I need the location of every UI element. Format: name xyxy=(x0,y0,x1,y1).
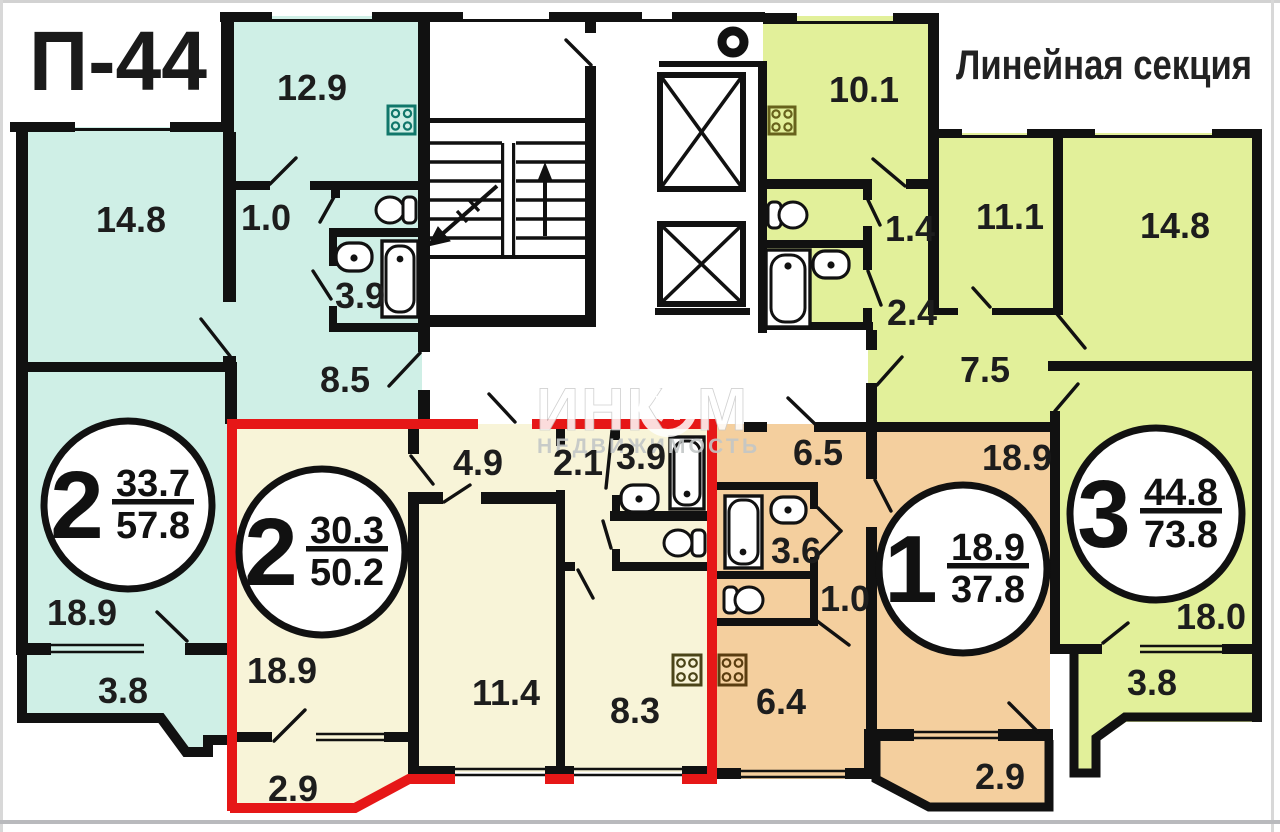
svg-text:1.4: 1.4 xyxy=(885,208,935,249)
svg-text:18.9: 18.9 xyxy=(47,592,117,633)
svg-text:30.3: 30.3 xyxy=(310,510,384,552)
svg-text:П-44: П-44 xyxy=(29,14,207,108)
svg-text:2: 2 xyxy=(244,499,297,606)
svg-text:2.9: 2.9 xyxy=(975,756,1025,797)
svg-text:3.8: 3.8 xyxy=(98,670,148,711)
svg-text:11.4: 11.4 xyxy=(472,672,540,713)
svg-text:1.0: 1.0 xyxy=(241,197,291,238)
svg-text:4.9: 4.9 xyxy=(453,442,503,483)
svg-text:3: 3 xyxy=(1077,461,1130,568)
svg-text:3.6: 3.6 xyxy=(771,530,821,571)
svg-text:57.8: 57.8 xyxy=(116,505,190,547)
svg-text:8.3: 8.3 xyxy=(610,690,660,731)
svg-text:8.5: 8.5 xyxy=(320,359,370,400)
svg-text:6.5: 6.5 xyxy=(793,432,843,473)
svg-text:18.9: 18.9 xyxy=(982,437,1052,478)
svg-text:3.9: 3.9 xyxy=(335,275,385,316)
svg-text:1: 1 xyxy=(884,516,937,623)
svg-text:М: М xyxy=(697,376,747,443)
svg-text:3.9: 3.9 xyxy=(616,436,666,477)
svg-text:18.9: 18.9 xyxy=(247,650,317,691)
svg-text:73.8: 73.8 xyxy=(1144,514,1218,556)
svg-text:37.8: 37.8 xyxy=(951,569,1025,611)
svg-text:3.8: 3.8 xyxy=(1127,662,1177,703)
svg-text:14.8: 14.8 xyxy=(1140,205,1210,246)
svg-text:18.9: 18.9 xyxy=(951,527,1025,569)
svg-text:12.9: 12.9 xyxy=(277,67,347,108)
svg-text:33.7: 33.7 xyxy=(116,463,190,505)
svg-text:1.0: 1.0 xyxy=(820,578,870,619)
svg-text:2.1: 2.1 xyxy=(553,442,603,483)
svg-text:10.1: 10.1 xyxy=(829,69,899,110)
svg-text:44.8: 44.8 xyxy=(1144,472,1218,514)
svg-text:2.4: 2.4 xyxy=(887,292,937,333)
svg-text:50.2: 50.2 xyxy=(310,552,384,594)
svg-text:Линейная секция: Линейная секция xyxy=(956,41,1252,88)
svg-text:14.8: 14.8 xyxy=(96,199,166,240)
svg-text:6.4: 6.4 xyxy=(756,681,806,722)
svg-text:11.1: 11.1 xyxy=(976,196,1044,237)
svg-text:18.0: 18.0 xyxy=(1176,596,1246,637)
svg-text:2.9: 2.9 xyxy=(268,768,318,809)
svg-text:2: 2 xyxy=(50,452,103,559)
svg-text:7.5: 7.5 xyxy=(960,349,1010,390)
